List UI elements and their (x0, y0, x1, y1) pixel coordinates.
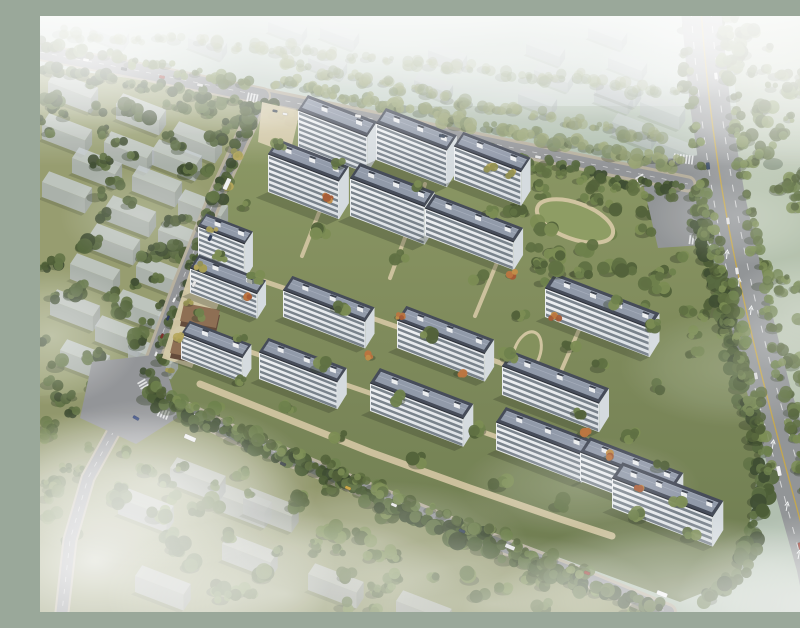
fog-layer (40, 16, 800, 612)
masterplan-render-canvas (40, 16, 800, 612)
architectural-aerial-rendering: Hazy daytime aerial rendering of a new r… (40, 16, 800, 612)
